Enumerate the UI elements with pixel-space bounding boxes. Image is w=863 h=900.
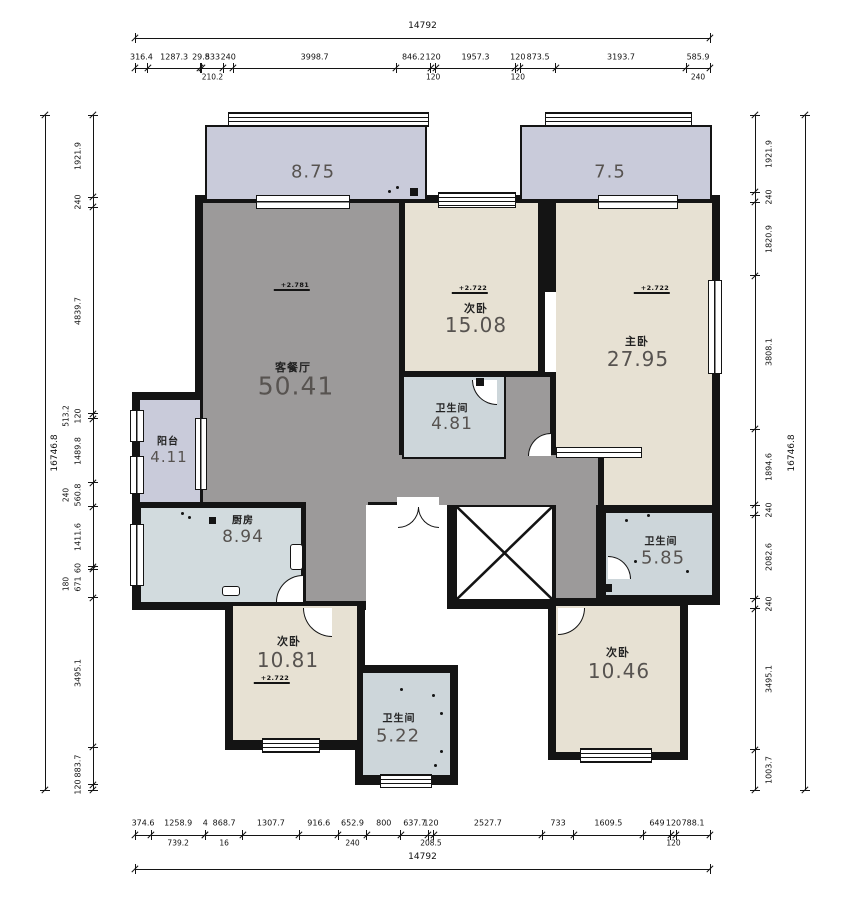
fixture-dot [388,190,391,193]
tick-guide [800,790,810,791]
dim-label: 1609.5 [594,819,622,828]
tick-guide [88,506,98,507]
tick-guide [338,830,339,840]
fixture-dot [434,764,437,767]
dim-sub-label: 240 [345,839,359,848]
room-name-bedroom-bl: 次卧 [277,633,301,649]
dim-label: 671 [74,576,83,591]
dim-chain-line [135,835,710,836]
dim-label: 2527.7 [474,819,502,828]
dim-label: 916.6 [307,819,330,828]
dim-label: 374.6 [132,819,155,828]
tick-guide [88,784,98,785]
fixture-dot [440,750,443,753]
tick-guide [643,830,644,840]
dim-label: 649 [649,819,664,828]
dim-label: 240 [74,195,83,210]
dim-label: 733 [550,819,565,828]
dim-label: 240 [765,503,774,518]
dim-label: 788.1 [682,819,705,828]
dim-total-line [135,38,710,39]
floor-drain-icon [410,188,418,196]
dim-sub-label: 180 [62,576,71,590]
dim-label: 240 [221,53,236,62]
tick-guide [750,202,760,203]
dim-label: 120 [425,53,440,62]
dim-label: 1411.6 [74,523,83,551]
dim-label: 868.7 [213,819,236,828]
fixture-dot [440,712,443,715]
tick-guide [435,63,436,73]
dim-total-label: 14792 [408,852,437,862]
room-name-balcony-west: 阳台 [157,433,179,448]
room-area-bath-bottom: 5.22 [376,726,420,747]
dim-total-line [45,115,46,790]
window-living-balcony [195,418,207,490]
window-master-right [708,280,722,374]
tick-guide [88,790,98,791]
dim-sub-label: 16 [219,839,229,848]
room-name-kitchen: 厨房 [232,512,254,527]
railing-top-right [545,112,692,127]
floor-drain-icon [209,517,216,524]
fixture-dot [647,514,650,517]
tick-guide [710,63,711,73]
dim-label: 120 [74,409,83,424]
tick-guide [750,515,760,516]
tick-guide [750,749,760,750]
tick-guide [542,830,543,840]
dim-sub-label: 120 [666,839,680,848]
room-name-bath-mid: 卫生间 [436,400,469,415]
room-label-balcony-top-left: 8.75 [291,162,335,183]
tick-guide [430,63,431,73]
room-name-bath-east: 卫生间 [645,533,678,548]
dim-label: 883.7 [74,755,83,778]
tick-guide [750,275,760,276]
dim-label: 240 [765,190,774,205]
dim-label: 652.9 [341,819,364,828]
dim-label: 800 [376,819,391,828]
window-kitchen [130,524,144,586]
dim-label: 4839.7 [74,297,83,325]
window-balcony-west-2 [130,456,144,494]
sink-icon [222,586,240,596]
tick-guide [515,63,516,73]
dim-sub-label: 513.2 [62,406,71,427]
tick-guide [710,864,711,874]
fixture-dot [188,516,191,519]
tick-guide [750,429,760,430]
tick-guide [800,115,810,116]
elevation-marker: +2.781 [274,281,310,291]
tick-guide [750,115,760,116]
dim-chain-line [93,115,94,790]
dim-label: 120 [510,53,525,62]
tick-guide [233,63,234,73]
tick-guide [40,790,50,791]
tick-guide [88,197,98,198]
tick-guide [201,63,202,73]
elevation-marker: +2.722 [634,284,670,294]
window-bath-bottom [380,774,432,788]
window-living-top [256,195,350,209]
entry-opening [397,497,439,507]
elevation-marker: +2.722 [254,674,290,684]
dim-label: 3495.1 [74,659,83,687]
dim-label: 1003.7 [765,756,774,784]
tick-guide [223,63,224,73]
tick-guide [147,63,148,73]
window-master-top [598,195,678,209]
room-area-bedroom-top: 15.08 [445,313,507,337]
room-area-bath-mid: 4.81 [431,414,473,434]
tick-guide [205,830,206,840]
room-area-kitchen: 8.94 [222,527,264,547]
dim-label: 120 [666,819,681,828]
dim-label: 1921.9 [74,142,83,170]
dim-sub-label: 240 [691,73,705,82]
tick-guide [299,830,300,840]
tick-guide [88,418,98,419]
dim-label: 533 [205,53,220,62]
tick-guide [135,63,136,73]
floor-drain-icon [476,378,484,386]
window-bedroom-bl [262,738,320,753]
tick-guide [400,830,401,840]
dim-label: 3193.7 [607,53,635,62]
dim-label: 1957.3 [461,53,489,62]
dim-label: 3998.7 [301,53,329,62]
tick-guide [135,864,136,874]
dim-label: 1287.3 [160,53,188,62]
dim-sub-label: 120 [426,73,440,82]
dim-label: 3495.1 [765,665,774,693]
tick-guide [88,747,98,748]
room-master-bedroom [556,203,712,447]
fixture-dot [625,519,628,522]
room-area-bedroom-br: 10.46 [588,659,650,683]
tick-guide [750,505,760,506]
dim-label: 585.9 [687,53,710,62]
dim-label: 240 [765,596,774,611]
hallway [306,502,368,601]
room-area-balcony-west: 4.11 [150,448,187,466]
tick-guide [710,33,711,43]
tick-guide [88,207,98,208]
dim-chain-line [755,115,756,790]
tick-guide [573,830,574,840]
entry-foyer [366,505,447,665]
dim-label: 560.8 [74,483,83,506]
tick-guide [151,830,152,840]
dim-sub-label: 739.2 [167,839,188,848]
fixture-dot [634,560,637,563]
dim-label: 60 [74,563,83,573]
dim-label: 873.5 [527,53,550,62]
dim-label: 1307.7 [257,819,285,828]
room-name-bedroom-br: 次卧 [606,644,630,660]
dim-label: 846.2 [402,53,425,62]
sliding-door-master [556,447,642,458]
dim-total-line [805,115,806,790]
tick-guide [686,63,687,73]
dim-label: 2082.6 [765,543,774,571]
dim-sub-label: 210.2 [202,73,223,82]
dim-total-line [135,869,710,870]
fixture-dot [432,694,435,697]
tick-guide [88,597,98,598]
tick-guide [750,598,760,599]
room-label-balcony-top-right: 7.5 [594,162,626,183]
dim-label: 1820.9 [765,225,774,253]
dim-sub-label: 120 [511,73,525,82]
tick-guide [88,569,98,570]
corridor-south [556,455,596,598]
elevation-marker: +2.722 [452,284,488,294]
tick-guide [88,413,98,414]
elevator-x-icon [457,507,552,599]
tick-guide [135,33,136,43]
tick-guide [40,115,50,116]
fixture-dot [686,570,689,573]
tick-guide [750,790,760,791]
tick-guide [242,830,243,840]
dim-label: 120 [74,780,83,795]
dim-total-label: 16746.8 [787,434,797,471]
tick-guide [88,482,98,483]
tick-guide [135,830,136,840]
fixture-dot [400,688,403,691]
tick-guide [750,608,760,609]
room-name-bath-bottom: 卫生间 [383,710,416,725]
dim-total-label: 14792 [408,21,437,31]
fixture-dot [181,512,184,515]
room-area-master: 27.95 [607,347,669,371]
wall-niche [545,292,556,372]
tick-guide [710,830,711,840]
room-kitchen [141,508,301,602]
dim-label: 1921.9 [765,140,774,168]
appliance-icon [290,544,303,570]
tick-guide [396,63,397,73]
dim-label: 4 [203,819,208,828]
tick-guide [88,115,98,116]
dim-label: 120 [423,819,438,828]
room-living-dining [203,203,399,502]
dim-label: 1258.9 [164,819,192,828]
room-bedroom-bottom-left [233,606,357,740]
room-area-bath-east: 5.85 [641,548,685,569]
room-area-living: 50.41 [258,372,335,401]
dim-label: 1489.8 [74,437,83,465]
floor-drain-icon [604,584,612,592]
fixture-dot [396,186,399,189]
room-area-bedroom-bl: 10.81 [257,648,319,672]
dim-sub-label: 240 [62,487,71,501]
railing-middle [438,192,516,208]
tick-guide [366,830,367,840]
dim-label: 316.4 [130,53,153,62]
railing-top-left [228,112,429,127]
floor-plan: +2.781 +2.722 +2.722 +2.722 8.75 7.5 客餐厅… [0,0,863,900]
window-bedroom-br [580,748,652,763]
dim-label: 1894.6 [765,453,774,481]
window-balcony-west-1 [130,410,144,442]
dim-label: 3808.1 [765,338,774,366]
dim-sub-label: 208.5 [420,839,441,848]
tick-guide [750,192,760,193]
dim-total-label: 16746.8 [50,434,60,471]
tick-guide [520,63,521,73]
tick-guide [555,63,556,73]
